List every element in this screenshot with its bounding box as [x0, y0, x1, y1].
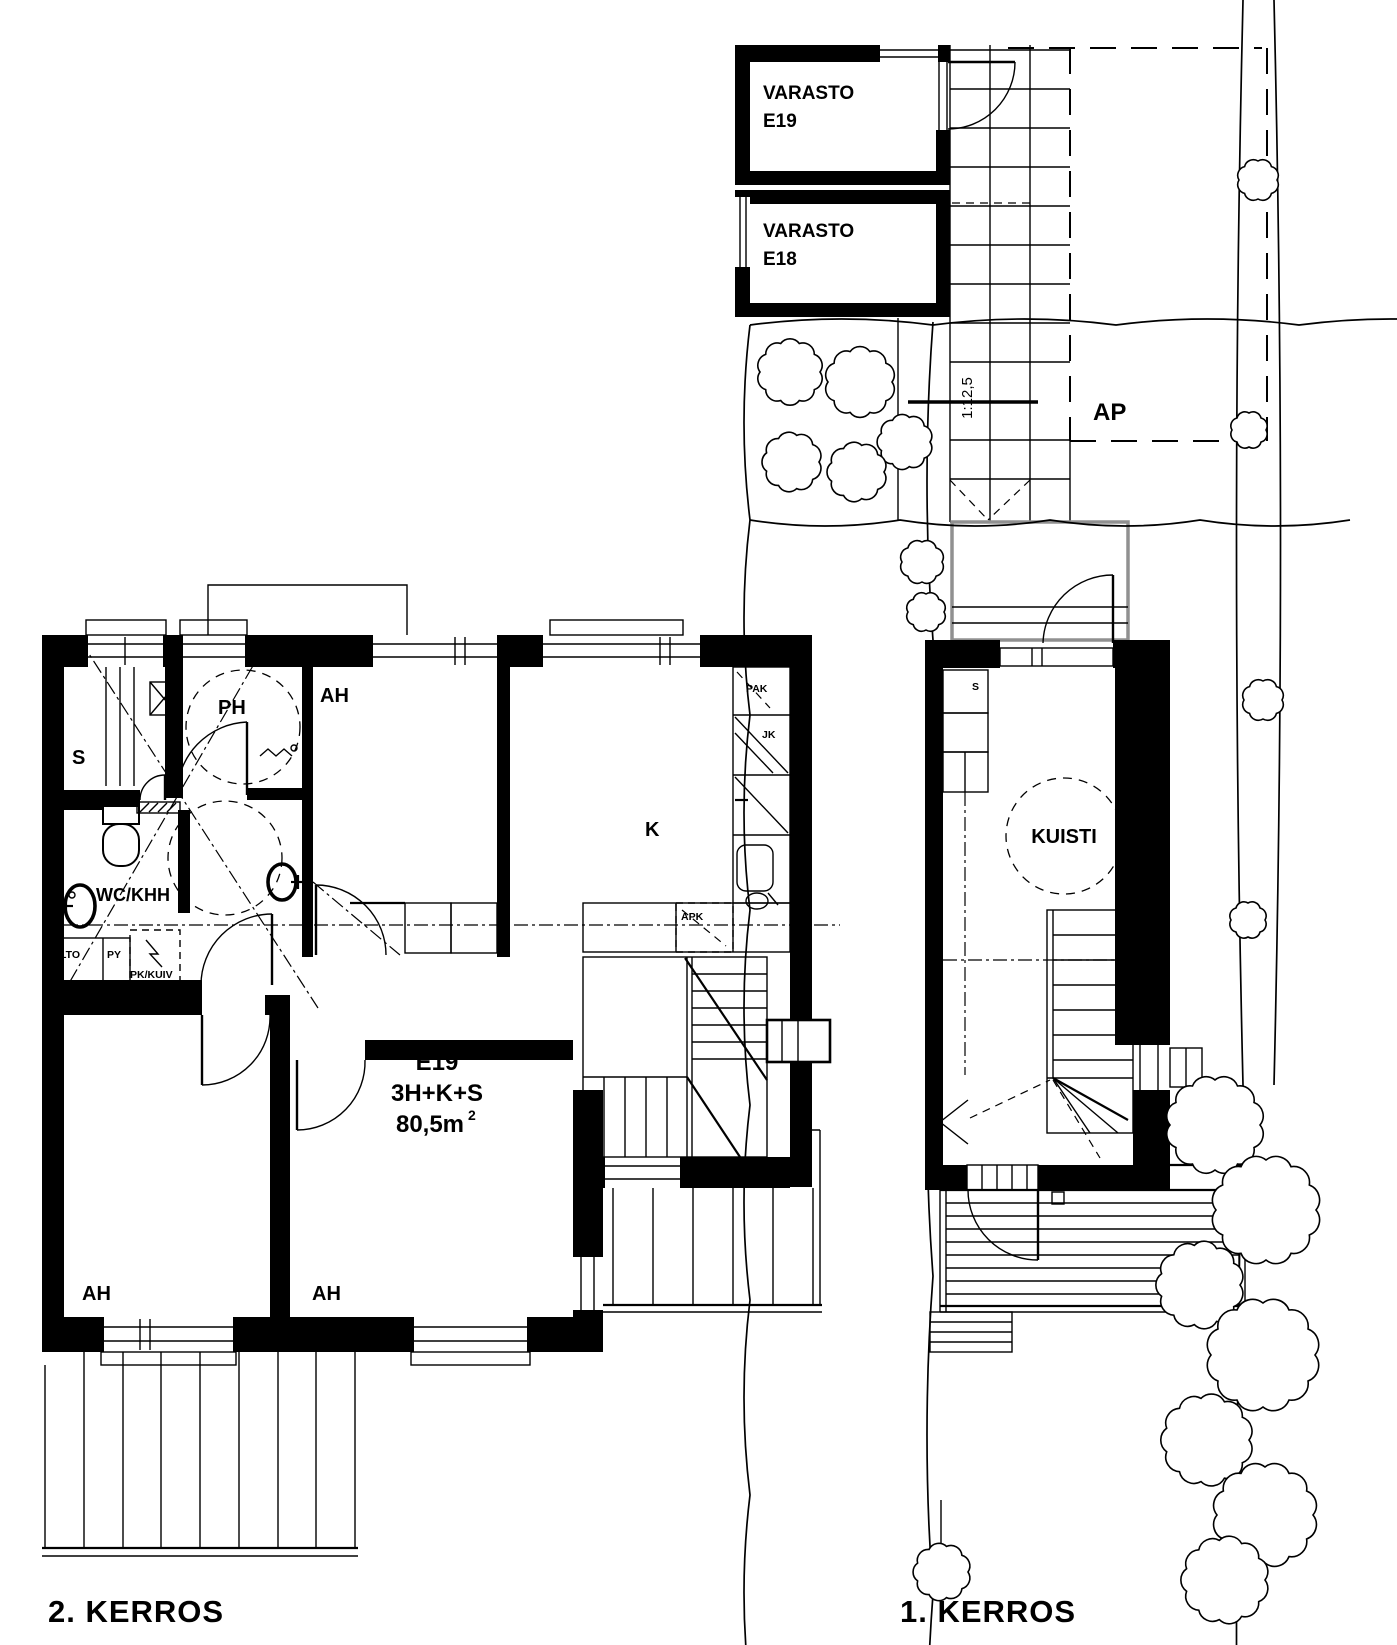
ramp-slope-label: 1:12,5	[959, 377, 976, 419]
fixture-label-pk-kuiv: PK/KUIV	[130, 969, 173, 981]
entrance-canopy	[952, 522, 1128, 640]
storage-e19: VARASTO E19	[735, 45, 1015, 185]
room-label-sauna: S	[72, 747, 85, 769]
fixture-label-freezer: PAK	[746, 683, 768, 695]
apartment-info: E19 3H+K+S 80,5m 2	[391, 1049, 483, 1138]
fixture-label-lto: LTO	[60, 949, 80, 961]
porch-label: KUISTI	[1031, 826, 1097, 848]
deck-2f-left	[42, 1352, 358, 1556]
room-label-utility: WC/KHH	[96, 885, 170, 905]
floor-plan-drawing: S PH AH K WC/KHH AH AH PAK JK APK LTO PY…	[0, 0, 1397, 1645]
staircase-2f	[583, 957, 767, 1157]
plan-second-floor: S PH AH K WC/KHH AH AH PAK JK APK LTO PY…	[42, 585, 840, 1629]
storage-e19-title: VARASTO	[763, 83, 854, 104]
storage-e18-unit: E18	[763, 249, 797, 270]
apartment-area-exponent: 2	[468, 1107, 476, 1123]
fixture-label-fridge: JK	[762, 729, 776, 741]
entry-door	[1000, 575, 1113, 666]
closet-label: S	[972, 681, 979, 693]
room-label-bedroom-middle: AH	[312, 1283, 341, 1305]
bush-bottom-small	[913, 1500, 970, 1601]
room-label-bedroom-left: AH	[82, 1283, 111, 1305]
apartment-id: E19	[416, 1049, 459, 1076]
storage-e19-unit: E19	[763, 111, 797, 132]
kitchen-counter	[583, 667, 790, 952]
trees-bottom-right	[1156, 1077, 1320, 1624]
staircase-1f	[940, 910, 1133, 1158]
turning-circle-ph	[186, 670, 300, 784]
fixture-label-dishwasher: APK	[681, 911, 704, 923]
plan-first-floor: VARASTO E19 VARASTO E18	[735, 0, 1397, 1645]
shower-symbol	[260, 745, 297, 756]
sauna-benches	[106, 667, 134, 786]
wall-vent-block	[767, 1020, 830, 1062]
parking-area-label: AP	[1093, 399, 1126, 426]
room-label-bedroom-top: AH	[320, 685, 349, 707]
fixture-label-py: PY	[107, 949, 121, 961]
caption-first-floor: 1. KERROS	[900, 1594, 1076, 1629]
sink-hall	[268, 864, 305, 900]
apartment-area: 80,5m	[396, 1111, 464, 1138]
caption-second-floor: 2. KERROS	[48, 1594, 224, 1629]
room-label-kitchen: K	[645, 819, 660, 841]
sink-wc	[59, 885, 95, 927]
storage-e18-title: VARASTO	[763, 221, 854, 242]
storage-e18: VARASTO E18	[735, 190, 950, 317]
toilet	[103, 806, 139, 866]
apartment-type: 3H+K+S	[391, 1080, 483, 1107]
window-bay	[1115, 1045, 1202, 1090]
room-label-washroom: PH	[218, 697, 246, 719]
canopy-outline	[208, 585, 407, 637]
hall-closets: S	[943, 670, 988, 792]
floor-plan-sheet: S PH AH K WC/KHH AH AH PAK JK APK LTO PY…	[0, 0, 1397, 1645]
